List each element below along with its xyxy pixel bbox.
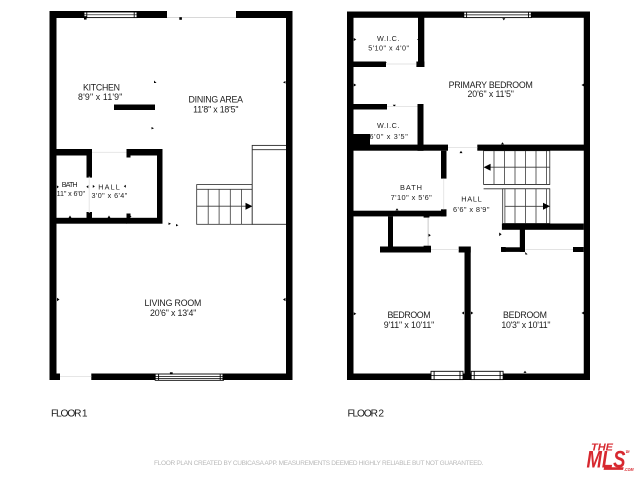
svg-text:BEDROOM: BEDROOM [387, 310, 430, 320]
svg-text:W.I.C.: W.I.C. [377, 121, 399, 130]
svg-text:7'10" x 5'6": 7'10" x 5'6" [391, 193, 433, 202]
svg-text:.COM: .COM [624, 467, 634, 472]
svg-text:8'9" x 11'9": 8'9" x 11'9" [78, 92, 122, 102]
svg-text:4'11" x 6'0": 4'11" x 6'0" [52, 189, 86, 198]
svg-text:6'0" x 3'5": 6'0" x 3'5" [369, 132, 408, 141]
svg-text:10'3" x 10'11": 10'3" x 10'11" [501, 320, 550, 330]
svg-text:DINING AREA: DINING AREA [189, 94, 244, 104]
svg-text:FLOOR 2: FLOOR 2 [348, 409, 385, 420]
svg-text:BATH: BATH [400, 183, 422, 192]
svg-text:6'6" x 8'9": 6'6" x 8'9" [453, 205, 490, 214]
svg-text:LIVING ROOM: LIVING ROOM [144, 298, 201, 308]
svg-text:20'6" x 11'5": 20'6" x 11'5" [468, 89, 514, 99]
svg-text:FLOOR 1: FLOOR 1 [51, 409, 88, 420]
svg-text:20'6" x 13'4": 20'6" x 13'4" [150, 308, 196, 318]
svg-text:5'10" x 4'0": 5'10" x 4'0" [368, 44, 409, 53]
svg-text:FLOOR PLAN CREATED BY CUBICASA: FLOOR PLAN CREATED BY CUBICASA APP. MEAS… [154, 460, 484, 467]
svg-text:HALL: HALL [461, 195, 481, 204]
svg-text:BEDROOM: BEDROOM [503, 310, 547, 320]
svg-text:9'11" x 10'11": 9'11" x 10'11" [384, 320, 435, 330]
svg-text:3'0" x 6'4": 3'0" x 6'4" [92, 191, 128, 200]
svg-text:11'8" x 18'5": 11'8" x 18'5" [193, 105, 238, 115]
svg-text:W.I.C.: W.I.C. [377, 34, 399, 43]
svg-text:TM: TM [626, 449, 631, 454]
